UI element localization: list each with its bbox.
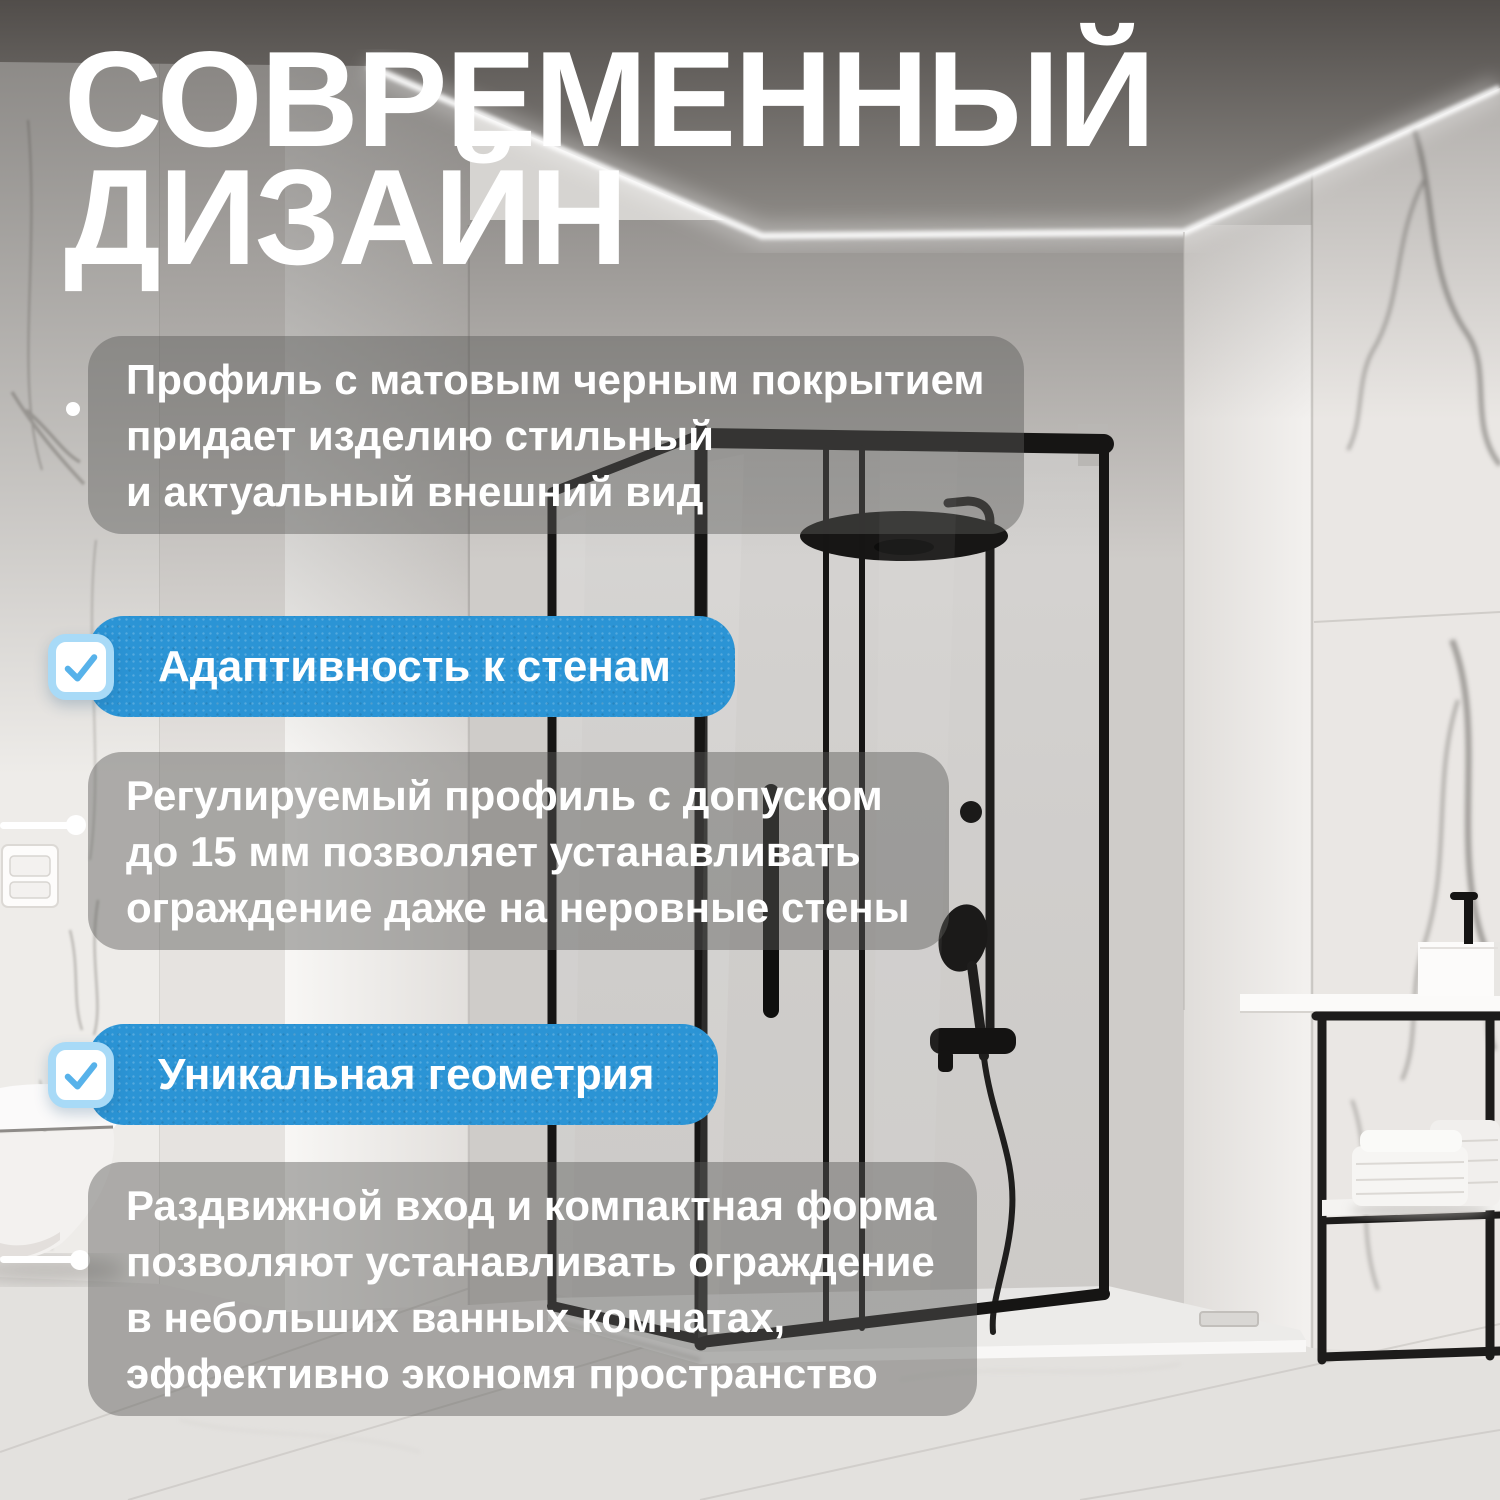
connector-line [0, 822, 72, 829]
product-infographic: СОВРЕМЕННЫЙ ДИЗАЙН Профиль с матовым чер… [0, 0, 1500, 1500]
bullet-dot [66, 815, 86, 835]
checkbox-icon [48, 634, 114, 700]
bullet-dot-intro [66, 402, 80, 416]
page-title-line2: ДИЗАЙН [64, 158, 1154, 276]
towels [1350, 1120, 1500, 1219]
intro-line: Профиль с матовым черным покрытием [126, 352, 984, 408]
feature-description-line: Регулируемый профиль с допуском [126, 768, 909, 824]
flush-plate [2, 845, 58, 907]
feature-description-line: ограждение даже на неровные стены [126, 880, 909, 936]
checkbox-icon [48, 1042, 114, 1108]
intro-line: придает изделию стильный [126, 408, 984, 464]
washbasin [1418, 942, 1500, 996]
check-icon [59, 1053, 103, 1097]
feature-description-line: эффективно экономя пространство [126, 1346, 937, 1402]
feature-description-line: в небольших ванных комнатах, [126, 1290, 937, 1346]
feature-banner-label: Уникальная геометрия [158, 1050, 654, 1100]
feature-description-card-adaptability: Регулируемый профиль с допуском до 15 мм… [88, 752, 949, 950]
intro-text-card: Профиль с матовым черным покрытием прида… [88, 336, 1024, 534]
check-icon [59, 645, 103, 689]
page-title: СОВРЕМЕННЫЙ ДИЗАЙН [64, 40, 1154, 276]
drain-cover [1200, 1312, 1258, 1326]
feature-description-line: позволяют устанавливать ограждение [126, 1234, 937, 1290]
feature-description-line: до 15 мм позволяет устанавливать [126, 824, 909, 880]
intro-line: и актуальный внешний вид [126, 464, 984, 520]
feature-banner-adaptability: Адаптивность к стенам [88, 616, 735, 717]
feature-description-card-geometry: Раздвижной вход и компактная форма позво… [88, 1162, 977, 1416]
bullet-dot [70, 1250, 90, 1270]
connector-line [0, 1256, 74, 1263]
slider-knob [960, 801, 982, 823]
feature-description-line: Раздвижной вход и компактная форма [126, 1178, 937, 1234]
feature-banner-label: Адаптивность к стенам [158, 642, 671, 692]
feature-banner-geometry: Уникальная геометрия [88, 1024, 718, 1125]
